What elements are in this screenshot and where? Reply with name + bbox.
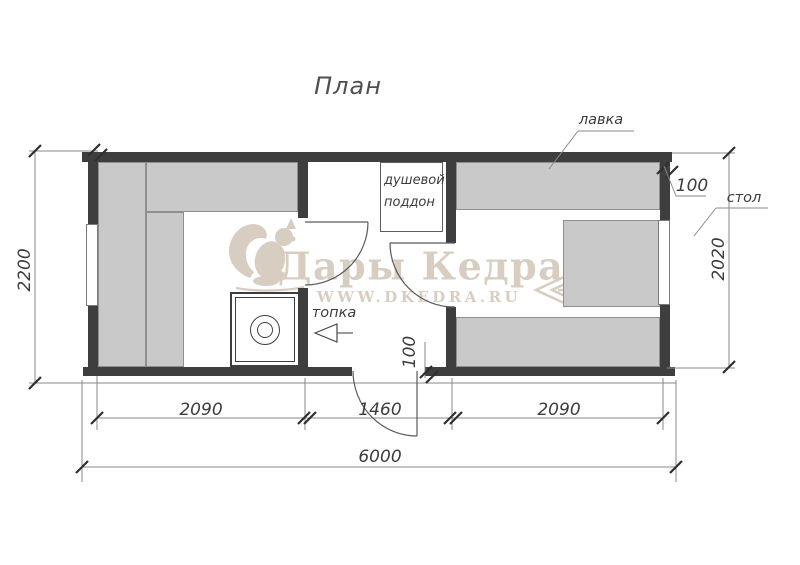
bench-steamroom-top: [146, 162, 298, 212]
dimension-wall-thickness: 100: [676, 176, 708, 196]
dimension-overall-width: 6000: [358, 447, 401, 467]
dimension-left-room-width: 2090: [179, 400, 222, 420]
wall-left-upper: [88, 162, 98, 224]
table: [563, 220, 660, 307]
shower-tray-label: душевой поддон: [384, 170, 442, 214]
dimension-door-offset: 100: [400, 336, 420, 368]
wall-bottom-left: [83, 367, 352, 376]
bench-restroom-top: [456, 162, 660, 210]
wall-right-upper: [660, 162, 670, 220]
bench-steamroom-tier2: [146, 212, 184, 367]
dimension-left-height: 2200: [15, 248, 35, 291]
shower-label-line2: поддон: [384, 192, 442, 214]
dimension-middle-room-width: 1460: [358, 400, 401, 420]
dimension-right-height: 2020: [709, 237, 729, 280]
shower-label-line1: душевой: [384, 170, 442, 192]
wall-partition1-upper: [298, 162, 308, 218]
window-right: [658, 220, 670, 305]
stove-circle-inner: [257, 322, 273, 338]
squirrel-icon: [220, 216, 306, 292]
firebox-arrow-icon: [315, 324, 353, 342]
wall-top: [82, 152, 672, 162]
wall-right-lower: [660, 305, 670, 367]
firebox-label: топка: [312, 305, 356, 321]
floor-plan-canvas: План Дары Кедра WWW.DKEDRA.RU: [0, 0, 800, 565]
bench-restroom-bottom: [456, 317, 660, 367]
wall-left-lower: [88, 306, 98, 367]
window-left: [86, 224, 98, 306]
watermark-site: WWW.DKEDRA.RU: [317, 288, 521, 306]
bench-label: лавка: [579, 112, 623, 128]
wall-partition2-lower: [446, 307, 456, 367]
table-label: стол: [727, 190, 762, 206]
wall-partition2-upper: [446, 162, 456, 243]
dimension-right-room-width: 2090: [537, 400, 580, 420]
watermark-brand: Дары Кедра: [278, 244, 565, 289]
bench-steamroom-tier1: [98, 162, 146, 367]
wall-bottom-right: [425, 367, 675, 376]
page-title: План: [314, 72, 382, 100]
